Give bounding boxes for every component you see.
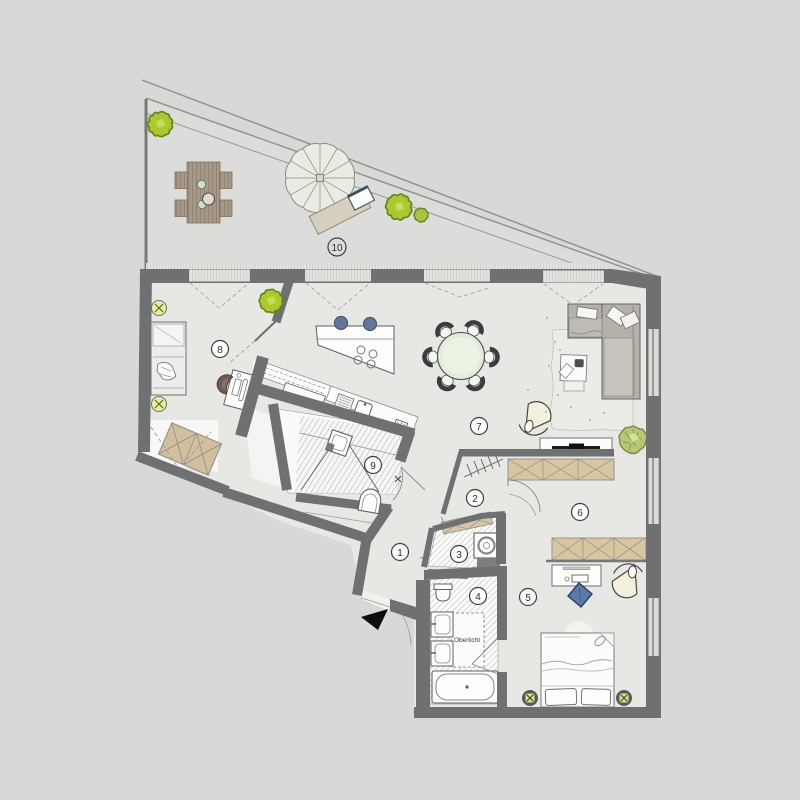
svg-text:3: 3 [456,550,462,561]
svg-text:1: 1 [397,548,403,559]
svg-text:10: 10 [331,243,343,254]
svg-text:4: 4 [475,592,481,603]
svg-text:5: 5 [525,593,531,604]
svg-text:9: 9 [370,461,376,472]
svg-text:6: 6 [577,508,583,519]
svg-text:8: 8 [217,345,223,356]
svg-text:Oberlicht: Oberlicht [454,637,480,644]
svg-text:2: 2 [472,494,478,505]
svg-text:7: 7 [476,422,482,433]
